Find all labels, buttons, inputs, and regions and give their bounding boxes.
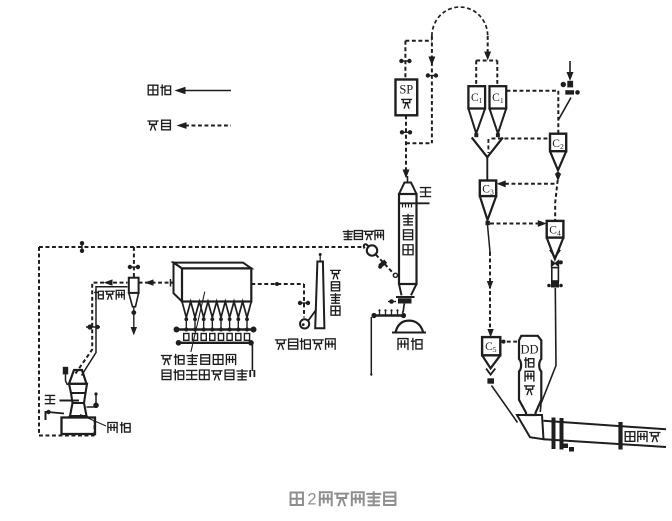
svg-text:2: 2 <box>307 491 316 509</box>
svg-text:DD: DD <box>520 343 538 357</box>
svg-text:SP: SP <box>399 83 413 97</box>
